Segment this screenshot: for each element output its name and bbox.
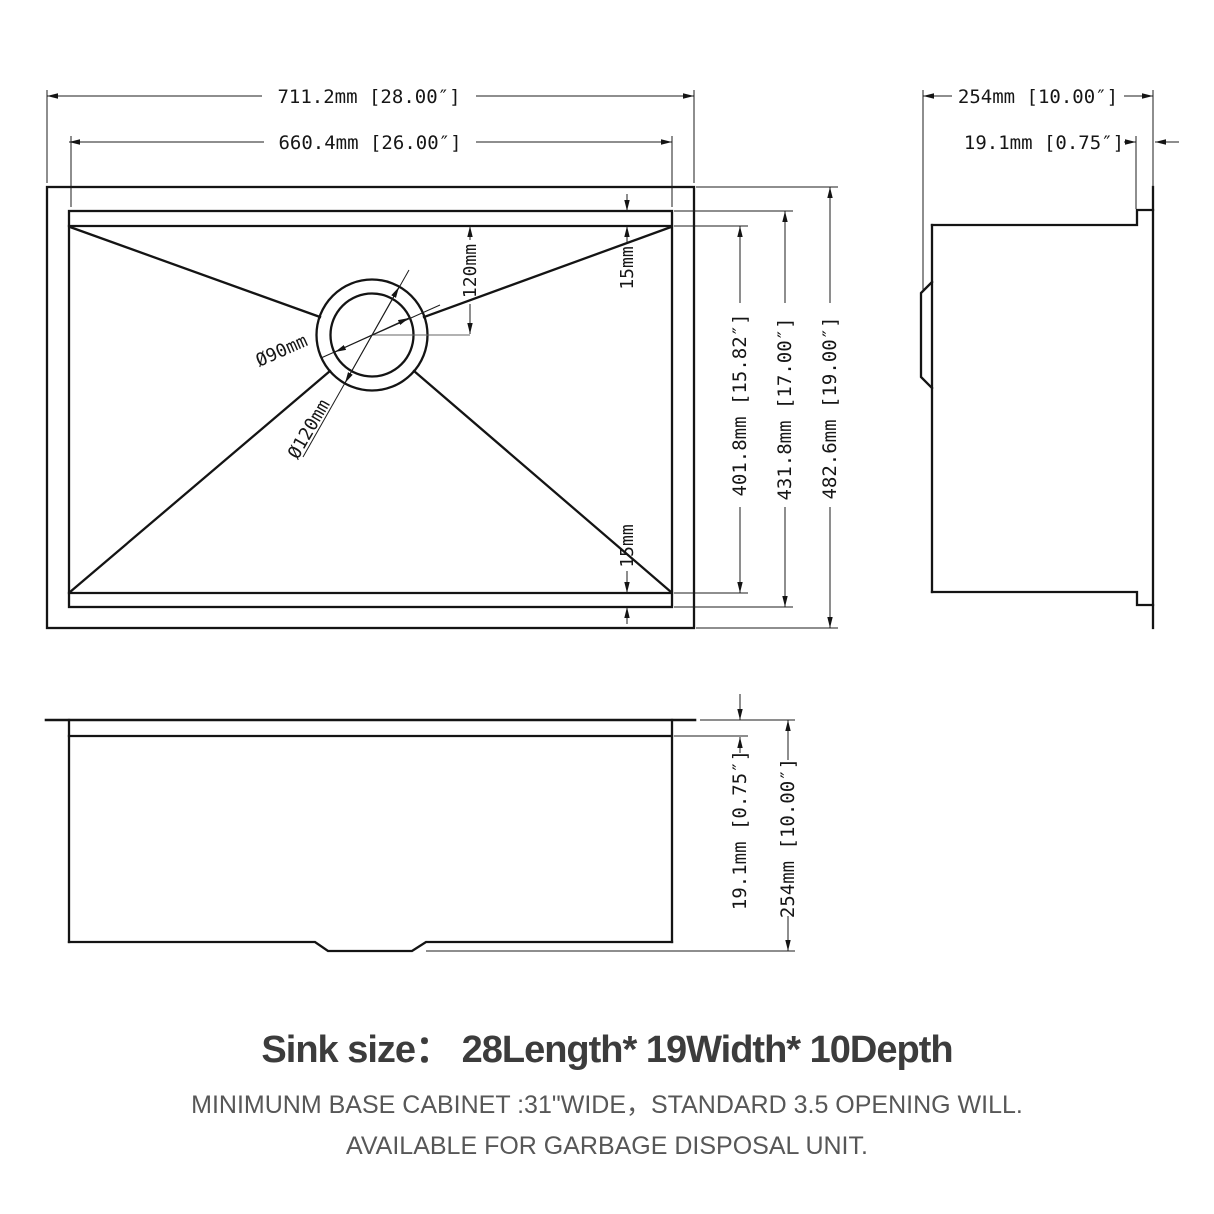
disposal-note-line: AVAILABLE FOR GARBAGE DISPOSAL UNIT. — [346, 1132, 868, 1160]
footer-text-block: Sink size： 28Length* 19Width* 10Depth MI… — [191, 1029, 1023, 1160]
dim-side-rim-label: 19.1mm [0.75″] — [964, 132, 1124, 154]
drain-inner-diameter-arrow — [372, 318, 409, 335]
drain-inner-diameter-arrow — [335, 335, 372, 352]
dim-edge-offset-bottom-label: 15mm — [617, 524, 638, 567]
corner-diagonal-top-left — [70, 227, 320, 317]
sink-size-title: Sink size： 28Length* 19Width* 10Depth — [261, 1029, 952, 1071]
dim-overall-height-label: 482.6mm [19.00″] — [819, 316, 841, 499]
dim-field-height-label: 401.8mm [15.82″] — [729, 313, 751, 496]
dim-drain-outer-diameter-label: Ø120mm — [284, 396, 335, 463]
cabinet-note-line: MINIMUNM BASE CABINET :31"WIDE，STANDARD … — [191, 1091, 1023, 1119]
dim-inner-width-label: 660.4mm [26.00″] — [278, 132, 461, 154]
technical-drawing-canvas: 711.2mm [28.00″] 660.4mm [26.00″] 401.8m… — [0, 0, 1214, 1214]
dim-front-depth-label: 254mm [10.00″] — [777, 758, 799, 918]
side-bottom-edge — [932, 592, 1153, 605]
dim-inner-height-label: 431.8mm [17.00″] — [774, 317, 796, 500]
dim-front-rim-label: 19.1mm [0.75″] — [729, 750, 751, 910]
sink-dimension-drawing-page: 711.2mm [28.00″] 660.4mm [26.00″] 401.8m… — [0, 0, 1214, 1214]
top-view: 711.2mm [28.00″] 660.4mm [26.00″] 401.8m… — [47, 86, 841, 628]
side-drain-bump — [921, 282, 932, 388]
front-bottom-edge-with-drain-bump — [69, 942, 672, 951]
front-view: 19.1mm [0.75″] 254mm [10.00″] — [46, 694, 799, 951]
side-view: 254mm [10.00″] 19.1mm [0.75″] — [921, 86, 1179, 628]
side-top-edge — [932, 210, 1153, 225]
dim-drain-inner-diameter-label: Ø90mm — [253, 330, 311, 371]
dim-overall-width-label: 711.2mm [28.00″] — [277, 86, 460, 108]
dim-side-depth-label: 254mm [10.00″] — [958, 86, 1118, 108]
dim-drain-offset-label: 120mm — [460, 244, 481, 298]
corner-diagonal-bottom-left — [70, 371, 330, 592]
bowl-outline — [69, 211, 672, 607]
dim-edge-offset-top-label: 15mm — [617, 246, 638, 289]
